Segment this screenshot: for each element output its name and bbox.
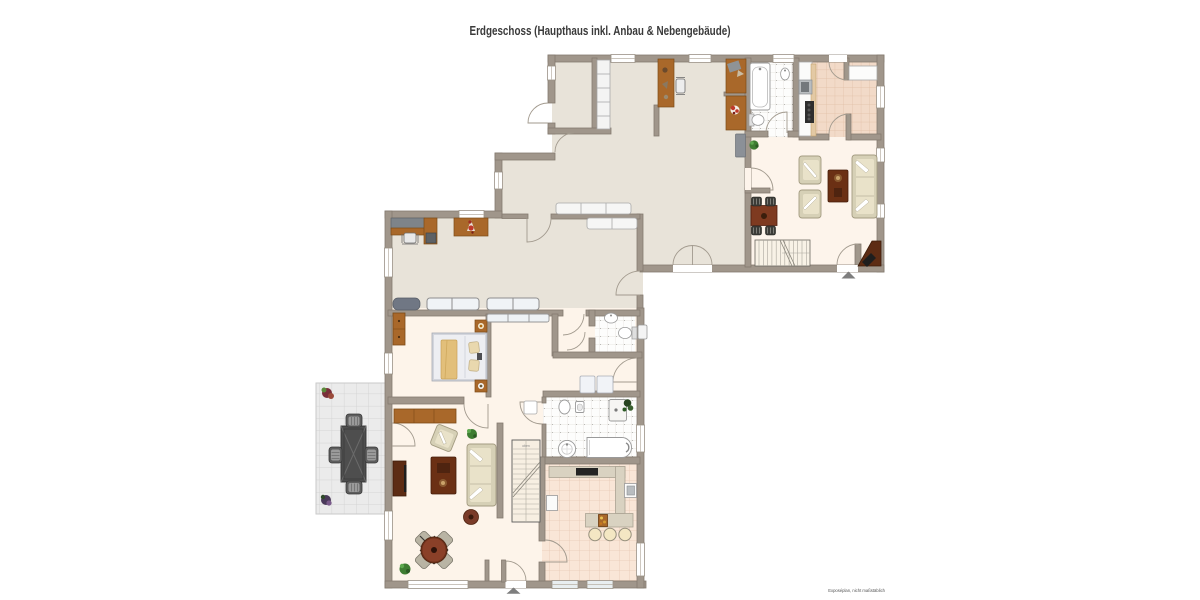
svg-text:Erdgeschoss (Haupthaus inkl. A: Erdgeschoss (Haupthaus inkl. Anbau & Neb…: [470, 24, 731, 38]
svg-text:oben: oben: [522, 444, 530, 448]
svg-text:Exposéplan, nicht maßstäblich: Exposéplan, nicht maßstäblich: [828, 588, 885, 593]
